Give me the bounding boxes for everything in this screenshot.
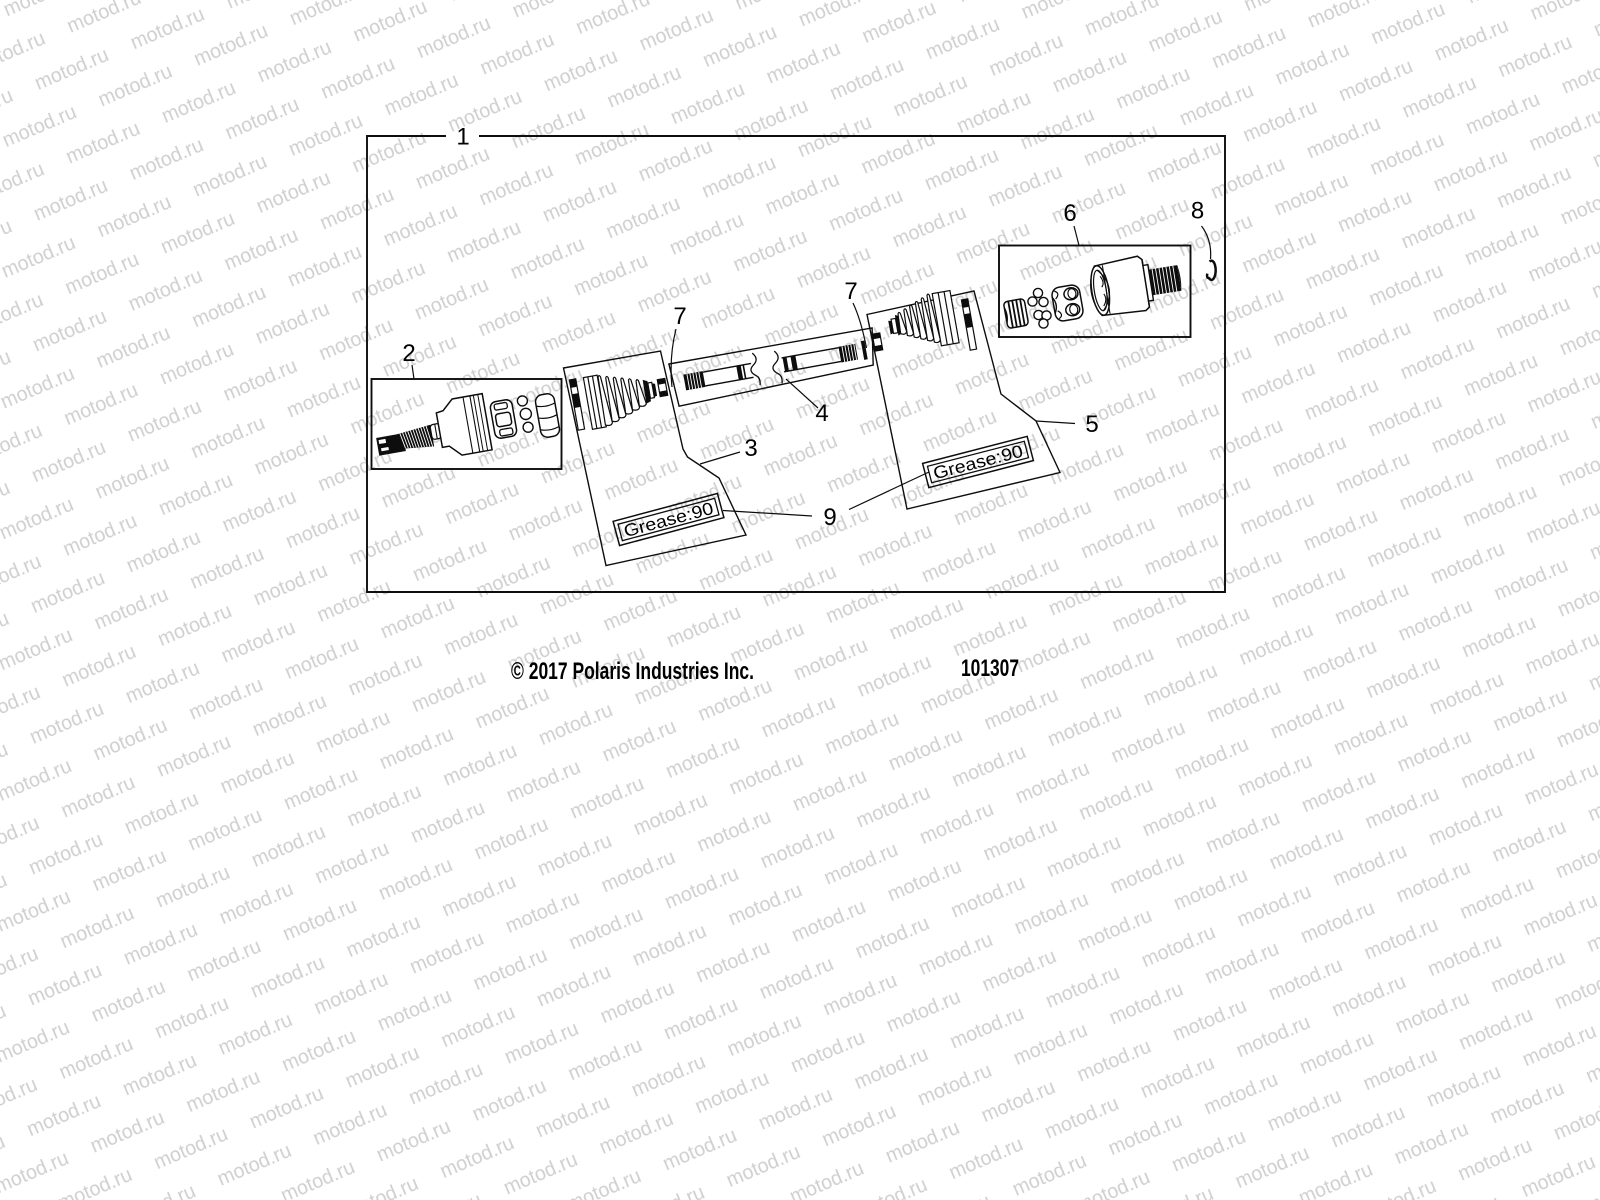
svg-text:7: 7 — [844, 278, 857, 305]
svg-text:1: 1 — [456, 124, 469, 151]
svg-text:© 2017 Polaris Industries Inc.: © 2017 Polaris Industries Inc. — [511, 658, 754, 685]
svg-text:8: 8 — [1191, 198, 1204, 225]
svg-text:101307: 101307 — [961, 655, 1019, 682]
svg-text:4: 4 — [815, 400, 828, 427]
svg-text:6: 6 — [1063, 200, 1076, 227]
svg-text:3: 3 — [744, 435, 757, 462]
svg-text:9: 9 — [823, 504, 836, 531]
svg-text:7: 7 — [673, 303, 686, 330]
svg-text:2: 2 — [402, 340, 415, 367]
svg-text:5: 5 — [1085, 411, 1098, 438]
